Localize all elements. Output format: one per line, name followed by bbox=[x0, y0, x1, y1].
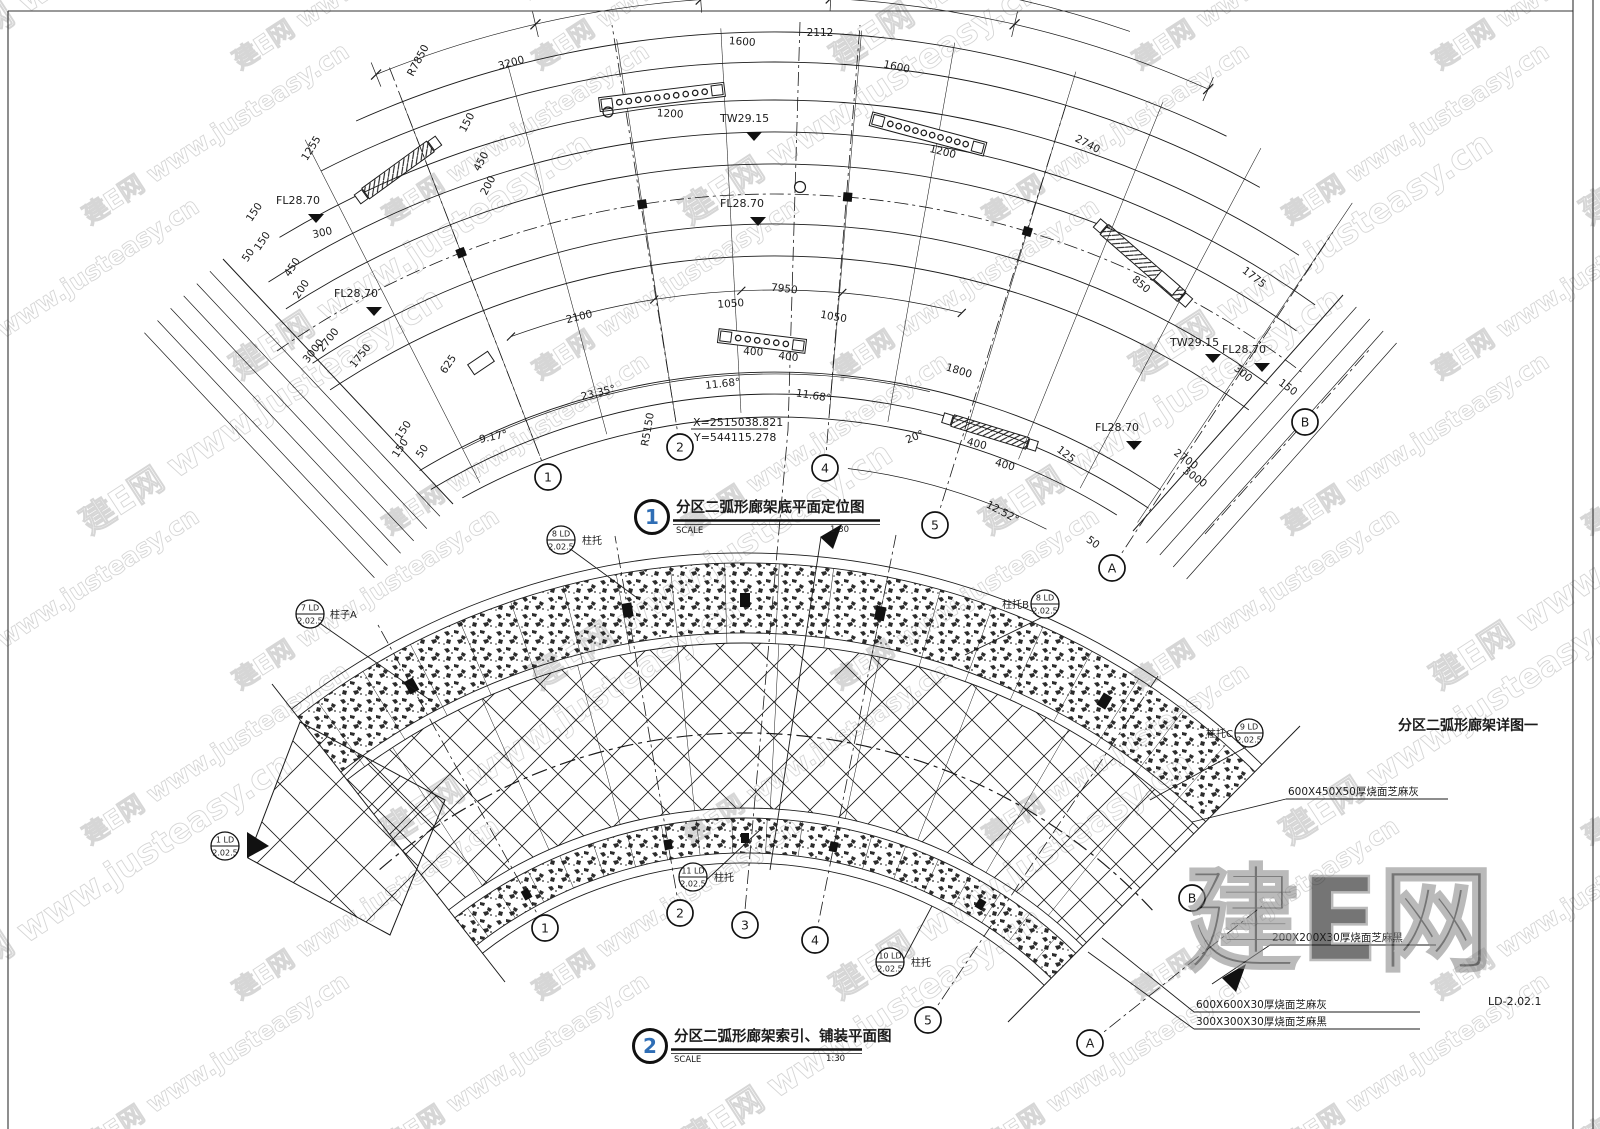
balloon-sheet-ref: 1 LD bbox=[216, 836, 234, 845]
drawing1-title: 分区二弧形廊架底平面定位图 bbox=[676, 498, 865, 516]
grid-bubble-label: A bbox=[1108, 561, 1117, 576]
watermark-text: 建E网 www.justeasy.cn bbox=[1277, 966, 1554, 1129]
dim-label: 300 bbox=[311, 225, 333, 241]
dim-label: 1255 bbox=[299, 134, 323, 163]
watermark-text: 建E网 www.justeasy.cn bbox=[73, 279, 450, 543]
dim-label: 1800 bbox=[944, 361, 973, 380]
callout-paving-600: 600X600X30厚烧面芝麻灰 bbox=[1196, 998, 1327, 1011]
balloon-sheet-no: 2.02.5 bbox=[1032, 607, 1057, 616]
drawing2-number: 2 bbox=[643, 1034, 657, 1058]
grid-bubble-label: 2 bbox=[676, 440, 684, 455]
grid-bubble-label: B bbox=[1301, 415, 1310, 430]
watermark-text: 建E网 www.justeasy.cn bbox=[977, 36, 1254, 230]
drawing1-number: 1 bbox=[645, 505, 659, 529]
balloon-sheet-ref: 11 LD bbox=[681, 867, 704, 876]
dim-label: 625 bbox=[438, 353, 459, 376]
balloon-sheet-ref: 10 LD bbox=[878, 952, 901, 961]
level-fl: FL28.70 bbox=[334, 287, 378, 300]
watermark-text: 建E网 www.justeasy.cn bbox=[377, 966, 654, 1129]
watermark-text: 建E网 www.justeasy.cn bbox=[827, 191, 1104, 385]
balloon-sheet-no: 2.02.5 bbox=[548, 543, 573, 552]
watermark-text: 建E网 www.justeasy.cn bbox=[1573, 0, 1600, 233]
balloon-sheet-ref: 8 LD bbox=[1036, 594, 1054, 603]
beam-dotted bbox=[869, 112, 987, 156]
drawing2-title: 分区二弧形廊架索引、铺装平面图 bbox=[674, 1027, 892, 1045]
level-triangle-icon bbox=[308, 214, 324, 223]
drawing1-scale-value: 1:30 bbox=[830, 525, 849, 535]
watermark-logo: 建E网 bbox=[1185, 854, 1494, 988]
coordinate-x: X=2515038.821 bbox=[693, 416, 783, 429]
dim-label: 50 bbox=[414, 442, 431, 460]
grid-bubble-label: 1 bbox=[544, 470, 552, 485]
watermark-text: 建E网 www.justeasy.cn bbox=[1427, 191, 1600, 385]
watermark-text: 建E网 www.justeasy.cn bbox=[1577, 656, 1600, 850]
level-fl: FL28.70 bbox=[276, 194, 320, 207]
dim-label: 400 bbox=[778, 350, 799, 364]
balloon-label: 柱托C bbox=[1206, 727, 1233, 740]
watermark-text: 建E网 www.justeasy.cn bbox=[77, 966, 354, 1129]
dim-label: 150 bbox=[244, 201, 265, 224]
balloon-sheet-ref: 7 LD bbox=[301, 604, 319, 613]
balloon-sheet-no: 2.02.5 bbox=[297, 617, 322, 626]
level-fl: FL28.70 bbox=[1222, 343, 1266, 356]
level-fl: FL28.70 bbox=[1095, 421, 1139, 434]
balloon-label: 柱托 bbox=[714, 871, 734, 884]
dim-label: 150 bbox=[252, 230, 273, 253]
angle-label: 11.68° bbox=[795, 387, 832, 404]
dim-label: 1200 bbox=[656, 107, 683, 120]
coordinate-y: Y=544115.278 bbox=[693, 431, 776, 444]
balloon-label: 柱托B bbox=[1002, 598, 1029, 611]
survey-coordinates: X=2515038.821 Y=544115.278 bbox=[691, 416, 783, 444]
dim-label: 7950 bbox=[770, 282, 798, 297]
level-triangle-icon bbox=[746, 132, 762, 141]
grid-bubble-label: 2 bbox=[676, 906, 684, 921]
watermark-text: 建E网 www.justeasy.cn bbox=[1577, 346, 1600, 540]
balloon-sheet-ref: 8 LD bbox=[552, 530, 570, 539]
watermark-text: 建E网 www.justeasy.cn bbox=[1573, 899, 1600, 1129]
balloon-label: 柱托 bbox=[582, 534, 602, 547]
sheet-right-title: 分区二弧形廊架详图一 bbox=[1398, 717, 1538, 734]
drawing1-scale-label: SCALE bbox=[676, 526, 703, 536]
dim-label: R5150 bbox=[639, 412, 657, 448]
grid-bubble-label: 3 bbox=[741, 918, 749, 933]
cad-canvas: 建E网 www.justeasy.cn建E网 www.justeasy.cn建E… bbox=[0, 0, 1600, 1129]
balloon-label: 柱托 bbox=[911, 956, 931, 969]
grid-bubble-label: 1 bbox=[541, 921, 549, 936]
level-tw: TW29.15 bbox=[1169, 336, 1219, 349]
grid-bubble-label: 4 bbox=[811, 933, 819, 948]
balloon-sheet-no: 2.02.5 bbox=[877, 965, 902, 974]
callout-paving-300: 300X300X30厚烧面芝麻黑 bbox=[1196, 1015, 1327, 1028]
balloon-sheet-no: 2.02.5 bbox=[680, 880, 705, 889]
balloon-sheet-no: 2.02.5 bbox=[1236, 736, 1261, 745]
grid-bubble-label: 5 bbox=[924, 1013, 932, 1028]
dim-label: 400 bbox=[743, 345, 764, 358]
balloon-sheet-no: 2.02.5 bbox=[212, 849, 237, 858]
beam-hatched bbox=[941, 412, 1038, 452]
beam-hatched bbox=[1093, 218, 1194, 308]
callout-bench: 600X450X50厚烧面芝麻灰 bbox=[1288, 785, 1419, 798]
dim-label: R7850 bbox=[405, 43, 432, 79]
level-fl: FL28.70 bbox=[720, 197, 764, 210]
dim-label: 150 bbox=[1276, 377, 1299, 398]
angle-label: 11.68° bbox=[704, 376, 740, 392]
grid-bubble-label: 5 bbox=[931, 518, 939, 533]
dim-label: 1050 bbox=[819, 309, 847, 325]
balloon-sheet-ref: 9 LD bbox=[1240, 723, 1258, 732]
dim-label: 400 bbox=[994, 457, 1017, 474]
grid-bubble-label: 4 bbox=[821, 461, 829, 476]
drawing2-scale-value: 1:30 bbox=[826, 1054, 845, 1064]
dim-label: 1050 bbox=[717, 297, 745, 311]
balloon-label: 柱子A bbox=[330, 608, 357, 621]
dim-label: 150 bbox=[457, 111, 477, 134]
grid-bubble-label: A bbox=[1086, 1036, 1095, 1051]
watermark-text: 建E网 www.justeasy.cn bbox=[673, 899, 1050, 1129]
sheet-number: LD-2.02.1 bbox=[1488, 995, 1542, 1008]
watermark-text: 建E网 www.justeasy.cn bbox=[1277, 346, 1554, 540]
dim-label: 1600 bbox=[728, 35, 756, 49]
watermark-text: 建E网 www.justeasy.cn bbox=[977, 966, 1254, 1129]
level-tw: TW29.15 bbox=[719, 112, 769, 125]
dim-label: 450 bbox=[282, 256, 303, 279]
drawing2-scale-label: SCALE bbox=[674, 1055, 701, 1065]
watermark-text: 建E网 www.justeasy.cn bbox=[377, 346, 654, 540]
dim-label: 400 bbox=[966, 436, 988, 452]
drawing-sheet: 建E网 www.justeasy.cn建E网 www.justeasy.cn建E… bbox=[0, 0, 1600, 1129]
dim-label: 3200 bbox=[497, 54, 526, 73]
dim-label: 2112 bbox=[807, 27, 834, 39]
watermark-text: 建E网 www.justeasy.cn bbox=[1127, 501, 1404, 695]
